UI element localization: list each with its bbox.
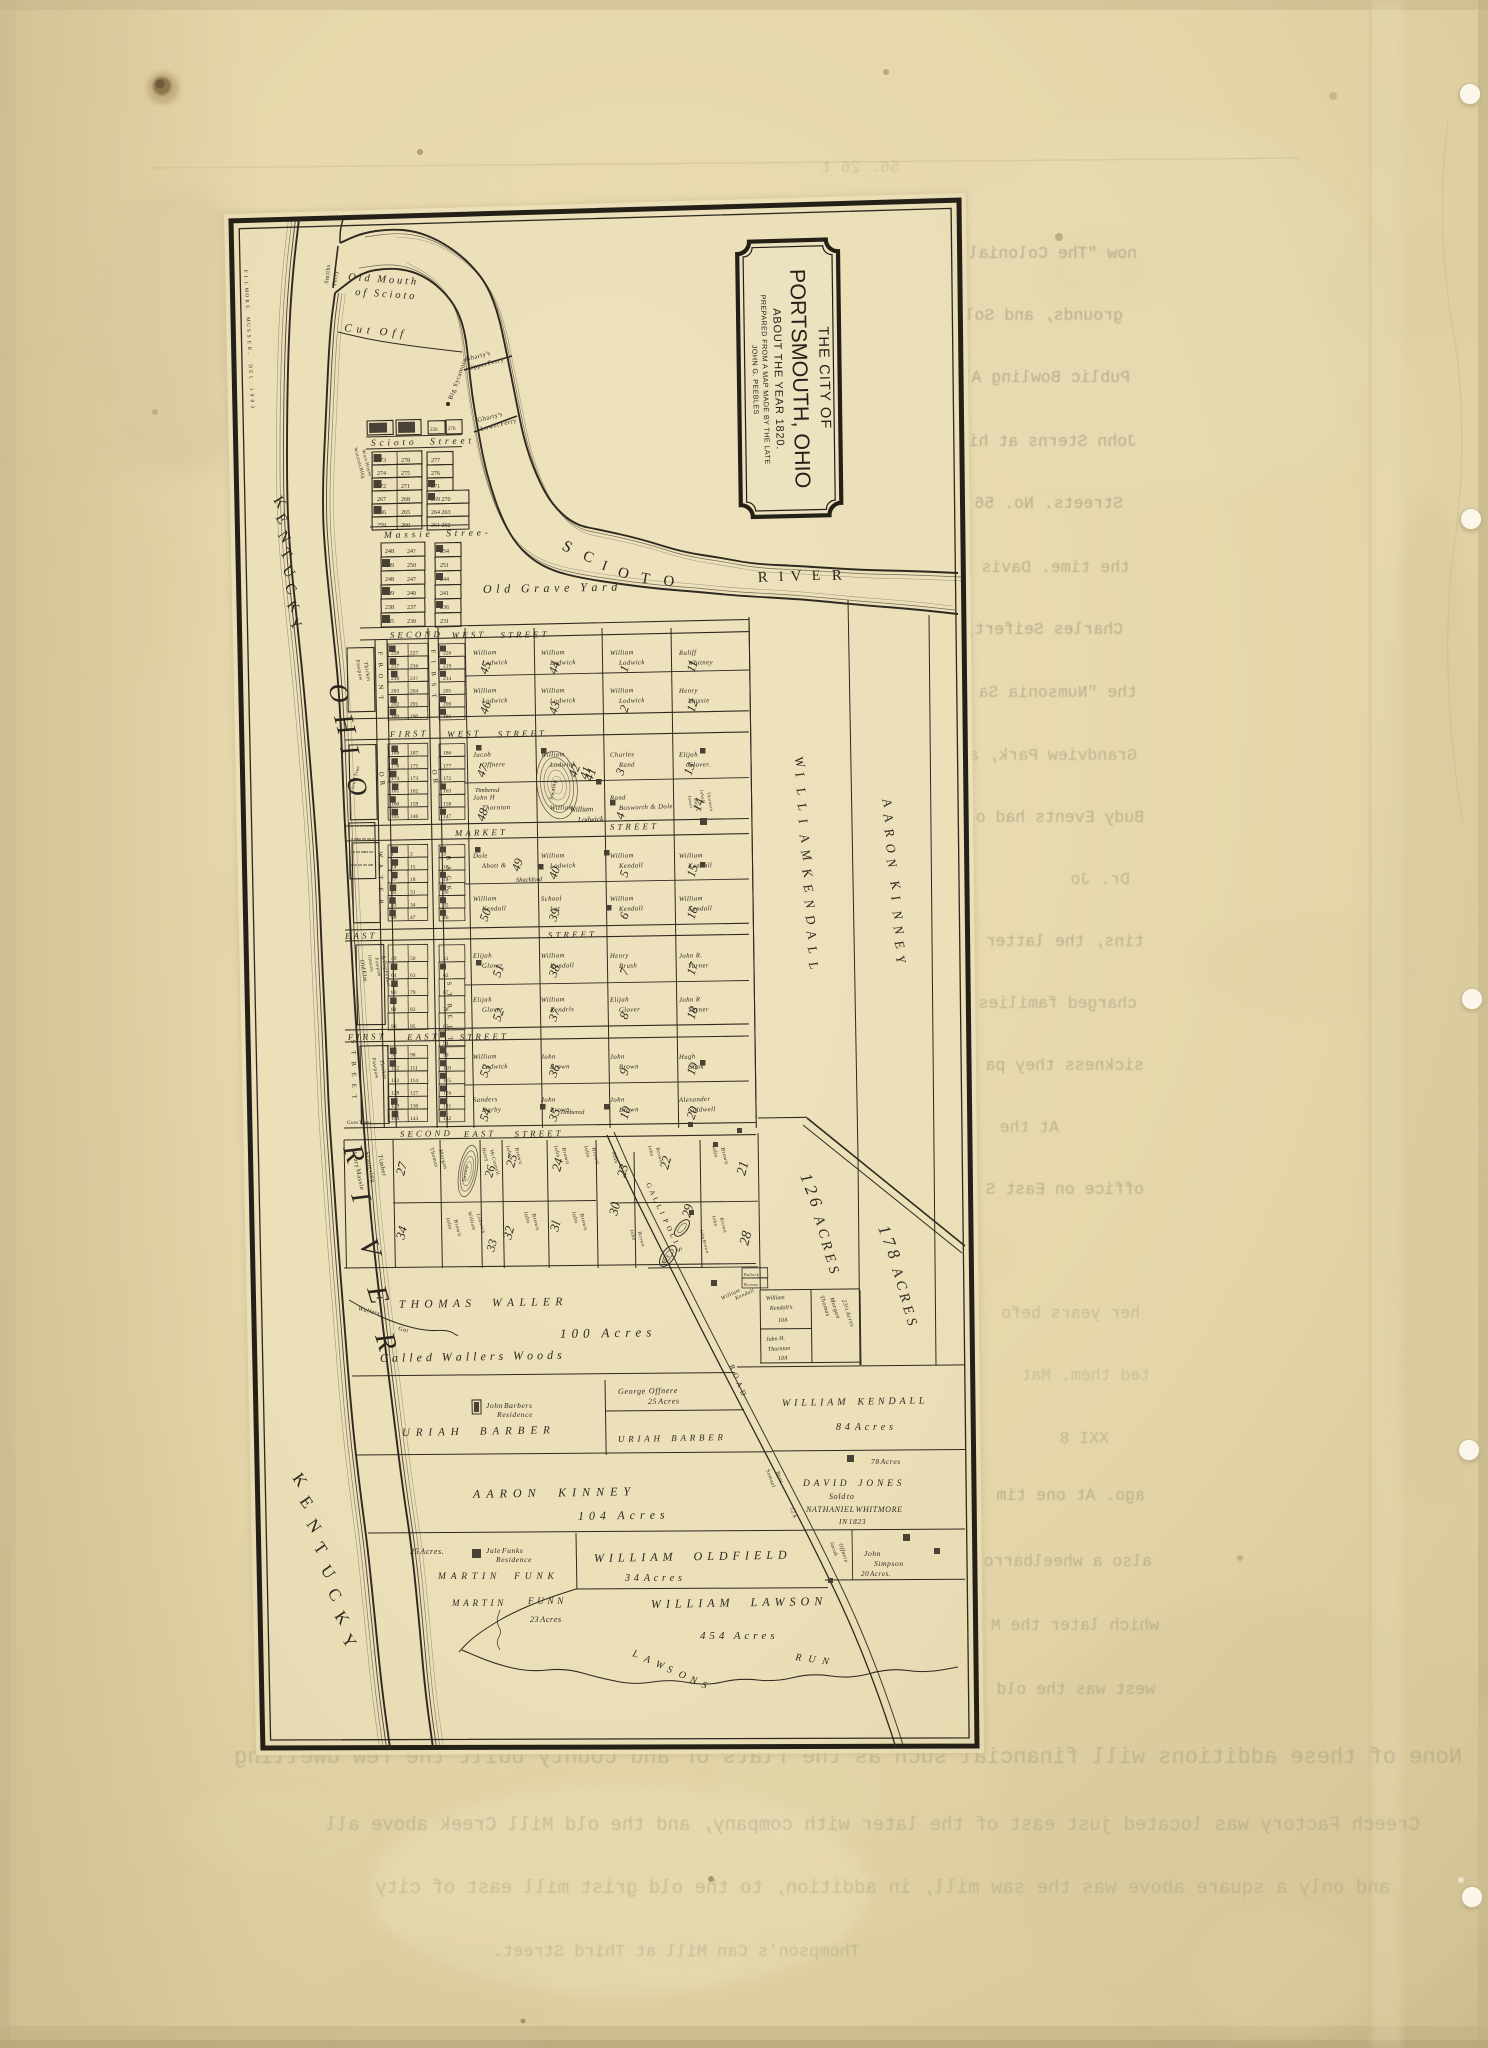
svg-text:her years befo: her years befo (1001, 1304, 1140, 1323)
svg-text:247: 247 (407, 577, 416, 583)
svg-text:William: William (679, 895, 703, 903)
svg-text:172: 172 (443, 776, 452, 782)
svg-text:Charles: Charles (610, 751, 635, 759)
svg-text:99: 99 (443, 1053, 449, 1059)
svg-text:also a wheelbarro: also a wheelbarro (984, 1552, 1152, 1571)
svg-text:S T R E E T: S T R E E T (500, 629, 547, 640)
svg-text:Kendall: Kendall (618, 862, 644, 870)
svg-text:248: 248 (385, 577, 394, 583)
svg-text:B r o w n s: B r o w n s (744, 1282, 759, 1287)
svg-text:30: 30 (443, 890, 449, 896)
svg-text:128: 128 (391, 1091, 400, 1097)
svg-text:250: 250 (407, 563, 416, 569)
svg-text:W E S T: W E S T (452, 629, 485, 640)
svg-text:S T R E E T: S T R E E T (610, 821, 657, 832)
svg-text:177: 177 (443, 763, 452, 769)
svg-text:Henry: Henry (678, 687, 699, 695)
svg-text:V: V (790, 568, 802, 585)
svg-text:Creech Factory was located jus: Creech Factory was located just east of … (325, 1814, 1420, 1836)
svg-text:8 4 A c r e s: 8 4 A c r e s (836, 1422, 894, 1433)
svg-text:O: O (663, 573, 676, 590)
svg-text:E: E (811, 569, 820, 584)
svg-text:248: 248 (385, 549, 394, 555)
svg-text:John H.: John H. (766, 1336, 785, 1343)
svg-text:O l d G r a v e Y a r d: O l d G r a v e Y a r d (483, 580, 619, 596)
svg-text:1 0 4 A c r e s: 1 0 4 A c r e s (578, 1507, 667, 1523)
svg-text:R: R (832, 568, 843, 584)
svg-text:158: 158 (443, 801, 452, 807)
svg-text:John R.: John R. (679, 952, 703, 960)
svg-text:S T R E E T: S T R E E T (514, 1128, 561, 1139)
svg-text:F I R S T: F I R S T (347, 1031, 385, 1042)
svg-text:34: 34 (410, 902, 416, 908)
svg-text:96: 96 (391, 1024, 397, 1030)
svg-text:William: William (610, 895, 634, 903)
svg-text:School: School (541, 895, 562, 903)
svg-text:2 0 A c r e s .: 2 0 A c r e s . (861, 1570, 891, 1578)
svg-text:274: 274 (377, 471, 386, 477)
svg-text:256: 256 (430, 428, 438, 433)
svg-text:251: 251 (440, 563, 449, 569)
svg-text:130: 130 (410, 1103, 419, 1109)
svg-text:Sanders: Sanders (473, 1096, 498, 1104)
svg-text:sickness they pa: sickness they pa (985, 1056, 1144, 1075)
svg-text:R e s i d e n c e: R e s i d e n c e (495, 1555, 532, 1564)
svg-text:William: William (541, 649, 565, 657)
svg-text:William: William (610, 687, 634, 695)
svg-text:E: E (244, 305, 250, 309)
svg-text:L: L (243, 281, 249, 285)
svg-text:William: William (473, 687, 497, 695)
svg-text:131: 131 (443, 1103, 452, 1109)
svg-text:271: 271 (401, 484, 410, 490)
svg-text:63: 63 (410, 973, 416, 979)
svg-text:113: 113 (391, 1078, 399, 1084)
svg-text:146: 146 (410, 814, 419, 820)
svg-text:R: R (757, 569, 768, 586)
svg-text:115: 115 (443, 1078, 451, 1084)
svg-text:At the: At the (1000, 1118, 1059, 1137)
svg-text:R e s i d e n c e: R e s i d e n c e (496, 1410, 533, 1419)
svg-text:the "Numsonia Sa: the "Numsonia Sa (978, 683, 1137, 702)
svg-text:A A R O N K I N N E Y: A A R O N K I N N E Y (472, 1484, 633, 1501)
svg-text:F I R S T: F I R S T (389, 728, 427, 739)
svg-text:William: William (473, 649, 497, 657)
svg-text:226: 226 (443, 651, 452, 657)
svg-text:M A R T I N: M A R T I N (451, 1598, 505, 1608)
svg-text:William: William (766, 1295, 786, 1302)
svg-text:19: 19 (443, 877, 449, 883)
svg-text:L: L (247, 376, 253, 380)
svg-text:Budy Events had o: Budy Events had o (976, 808, 1144, 827)
svg-text:the time. Davis: the time. Davis (981, 558, 1130, 577)
svg-text:J o h n: J o h n (864, 1549, 881, 1558)
svg-text:7 8 A c r e s: 7 8 A c r e s (871, 1457, 900, 1466)
svg-text:William: William (610, 852, 634, 860)
svg-text:Timbered: Timbered (475, 787, 500, 794)
svg-text:126: 126 (443, 1091, 452, 1097)
svg-text:95: 95 (410, 1024, 416, 1030)
svg-text:S T R E E T: S T R E E T (548, 929, 595, 940)
svg-text:Abott &: Abott & (481, 862, 507, 870)
svg-text:D A V I D J O N E S: D A V I D J O N E S (802, 1479, 903, 1489)
svg-text:Henry: Henry (609, 952, 630, 960)
svg-text:William: William (679, 852, 703, 860)
svg-text:S T R E E T: S T R E E T (498, 728, 545, 739)
svg-text:110: 110 (443, 1065, 451, 1071)
svg-text:J o h n B a r b e r s: J o h n B a r b e r s (486, 1401, 532, 1410)
svg-text:Rand: Rand (618, 761, 635, 769)
svg-text:268: 268 (401, 497, 410, 503)
svg-text:81: 81 (391, 1007, 397, 1013)
svg-text:William: William (541, 687, 565, 695)
svg-text:2 5 A c r e s .: 2 5 A c r e s . (410, 1547, 444, 1556)
svg-text:tins, the latter: tins, the latter (986, 932, 1144, 951)
svg-text:E: E (247, 370, 253, 374)
svg-text:64: 64 (391, 973, 397, 979)
svg-text:E A S T: E A S T (344, 930, 376, 941)
svg-text:G e o r g e O f f n e r e: G e o r g e O f f n e r e (618, 1386, 678, 1396)
svg-text:Dole: Dole (472, 852, 488, 860)
svg-text:Public Bowling Al: Public Bowling Al (962, 368, 1130, 387)
svg-text:238: 238 (385, 605, 394, 611)
svg-text:John: John (541, 1096, 556, 1104)
svg-text:office on East S: office on East S (985, 1180, 1144, 1199)
svg-text:E A S T: E A S T (406, 1031, 438, 1042)
svg-text:276: 276 (448, 427, 456, 432)
svg-text:50: 50 (410, 956, 416, 962)
svg-text:William: William (473, 1053, 497, 1061)
svg-text:S E C O N D: S E C O N D (390, 629, 441, 640)
svg-text:west was the old: west was the old (997, 1680, 1155, 1699)
svg-text:M: M (243, 287, 249, 293)
svg-text:191: 191 (443, 714, 452, 720)
svg-text:Streets. No. 56: Streets. No. 56 (974, 494, 1123, 513)
svg-text:18: 18 (410, 877, 416, 883)
svg-text:62: 62 (443, 973, 449, 979)
svg-text:18: 18 (443, 864, 449, 870)
svg-text:4 5 4 A c r e s: 4 5 4 A c r e s (700, 1630, 776, 1642)
svg-text:Alexander: Alexander (678, 1096, 711, 1104)
svg-text:THE CITY OF: THE CITY OF (815, 326, 834, 430)
svg-text:M A R T I N F U N K: M A R T I N F U N K (437, 1572, 556, 1582)
svg-text:127: 127 (410, 1091, 419, 1097)
svg-text:51: 51 (443, 956, 449, 962)
svg-text:Elijah: Elijah (472, 952, 492, 960)
svg-text:charged families: charged families (979, 994, 1137, 1013)
svg-text:79: 79 (410, 990, 416, 996)
svg-text:M: M (244, 317, 250, 323)
svg-text:231: 231 (440, 619, 449, 625)
svg-text:S E C O N D: S E C O N D (400, 1128, 451, 1139)
svg-text:XXI 8: XXI 8 (1059, 1429, 1109, 1448)
svg-text:Jacob: Jacob (473, 751, 492, 759)
svg-text:259: 259 (377, 523, 386, 529)
svg-text:2: 2 (410, 852, 413, 858)
svg-text:John: John (541, 1053, 556, 1061)
svg-text:S o l d t o: S o l d t o (829, 1492, 854, 1501)
svg-text:Timbered: Timbered (560, 1109, 585, 1116)
svg-text:98: 98 (410, 1053, 416, 1059)
svg-text:Elijah: Elijah (472, 996, 492, 1004)
svg-text:56. 26 t: 56. 26 t (821, 158, 900, 177)
svg-text:267: 267 (377, 497, 386, 503)
svg-text:143: 143 (410, 1116, 419, 1122)
svg-text:William: William (541, 852, 565, 860)
svg-text:John: John (610, 1053, 625, 1061)
svg-text:261 262: 261 262 (431, 523, 451, 529)
svg-text:E A S T: E A S T (463, 1128, 495, 1139)
svg-text:William: William (541, 996, 565, 1004)
svg-text:49: 49 (391, 956, 397, 962)
svg-text:10A: 10A (778, 1317, 788, 1324)
svg-text:Charles Seifert,: Charles Seifert, (965, 620, 1123, 639)
svg-text:W E S T: W E S T (447, 728, 480, 739)
svg-text:B u l l o c k: B u l l o c k (744, 1272, 759, 1277)
svg-text:203: 203 (391, 689, 400, 695)
svg-text:S T R E E T: S T R E E T (460, 1031, 507, 1042)
svg-text:J u l e F u n k s: J u l e F u n k s (486, 1546, 523, 1555)
svg-text:163: 163 (443, 789, 452, 795)
svg-text:111: 111 (410, 1065, 418, 1071)
svg-text:114: 114 (410, 1078, 418, 1084)
svg-text:Ruliff: Ruliff (678, 649, 697, 657)
svg-text:276: 276 (431, 471, 440, 477)
svg-text:1 0 0 A c r e s: 1 0 0 A c r e s (560, 1324, 654, 1341)
svg-text:78: 78 (443, 1007, 449, 1013)
svg-text:142: 142 (443, 1116, 452, 1122)
svg-text:47: 47 (410, 915, 416, 921)
svg-text:U R I A H B A R B E R: U R I A H B A R B E R (618, 1432, 725, 1444)
svg-text:275: 275 (401, 471, 410, 477)
svg-text:Hugh: Hugh (678, 1053, 696, 1061)
svg-text:Grandview Park, a: Grandview Park, a (969, 746, 1137, 765)
svg-text:John R: John R (679, 996, 701, 1004)
svg-text:G u m T r e e s: G u m T r e e s (347, 1121, 372, 1126)
svg-text:and only a square above was th: and only a square above was the saw mill… (375, 1877, 1390, 1899)
svg-text:Elijah: Elijah (609, 996, 629, 1004)
svg-text:now "The Colonial: now "The Colonial (969, 244, 1137, 263)
svg-text:278: 278 (401, 458, 410, 464)
svg-text:241: 241 (440, 591, 449, 597)
svg-text:Thornton: Thornton (768, 1346, 791, 1353)
svg-text:N A T H A N I E L W H I T M O: N A T H A N I E L W H I T M O R E (805, 1505, 902, 1514)
svg-text:Lodwick: Lodwick (577, 814, 604, 824)
svg-text:240: 240 (407, 591, 416, 597)
svg-text:M A R K E T: M A R K E T (454, 827, 506, 838)
svg-text:80: 80 (391, 990, 397, 996)
svg-text:grounds, and Sol.: grounds, and Sol. (955, 306, 1123, 325)
svg-text:John Sterns at hi: John Sterns at hi (969, 432, 1137, 451)
svg-text:10A: 10A (778, 1355, 788, 1362)
svg-text:2 5 A c r e s: 2 5 A c r e s (648, 1396, 679, 1406)
svg-text:William: William (610, 649, 634, 657)
svg-text:William: William (473, 895, 497, 903)
svg-text:83: 83 (443, 1024, 449, 1030)
svg-text:JOHN G. PEEBLES: JOHN G. PEEBLES (750, 345, 761, 415)
svg-text:2 3 A c r e s: 2 3 A c r e s (530, 1615, 561, 1624)
svg-text:230: 230 (407, 619, 416, 625)
svg-text:Dr. Jo: Dr. Jo (1071, 870, 1130, 889)
svg-text:Lodwick: Lodwick (618, 697, 646, 705)
svg-text:E: E (246, 340, 252, 344)
svg-text:190: 190 (410, 714, 419, 720)
svg-text:Shackford: Shackford (516, 876, 543, 884)
svg-text:ago. At one tim: ago. At one tim (996, 1486, 1145, 1505)
svg-text:William: William (541, 952, 565, 960)
svg-text:264 263: 264 263 (431, 510, 451, 516)
svg-text:William: William (570, 804, 594, 814)
svg-text:John H: John H (473, 794, 496, 802)
svg-text:Kendall’s: Kendall’s (769, 1305, 794, 1312)
svg-text:John: John (610, 1096, 625, 1104)
svg-text:214: 214 (443, 676, 452, 682)
svg-text:Elijah: Elijah (678, 751, 698, 759)
svg-text:I N 1 8 2 3: I N 1 8 2 3 (838, 1517, 866, 1526)
svg-text:237: 237 (407, 605, 416, 611)
svg-text:265: 265 (401, 510, 410, 516)
svg-text:3 4 A c r e s: 3 4 A c r e s (624, 1573, 683, 1584)
svg-text:277: 277 (431, 458, 440, 464)
svg-text:67: 67 (443, 990, 449, 996)
svg-text:F U N N: F U N N (527, 1596, 565, 1606)
svg-text:15: 15 (410, 864, 416, 870)
svg-text:24?: 24? (407, 549, 416, 555)
svg-text:Thompson's Can Mill at Third S: Thompson's Can Mill at Third Street. (493, 1943, 860, 1962)
svg-text:82: 82 (410, 1007, 416, 1013)
svg-text:205: 205 (443, 689, 452, 695)
svg-text:ted them. Mat: ted them. Mat (1021, 1366, 1150, 1385)
svg-text:3: 3 (443, 852, 446, 858)
svg-text:147: 147 (443, 814, 452, 820)
svg-text:186: 186 (443, 751, 452, 757)
svg-text:31: 31 (410, 890, 416, 896)
svg-text:S i m p s o n: S i m p s o n (874, 1559, 903, 1568)
svg-text:which later the M: which later the M (991, 1616, 1159, 1635)
svg-text:46: 46 (443, 915, 449, 921)
